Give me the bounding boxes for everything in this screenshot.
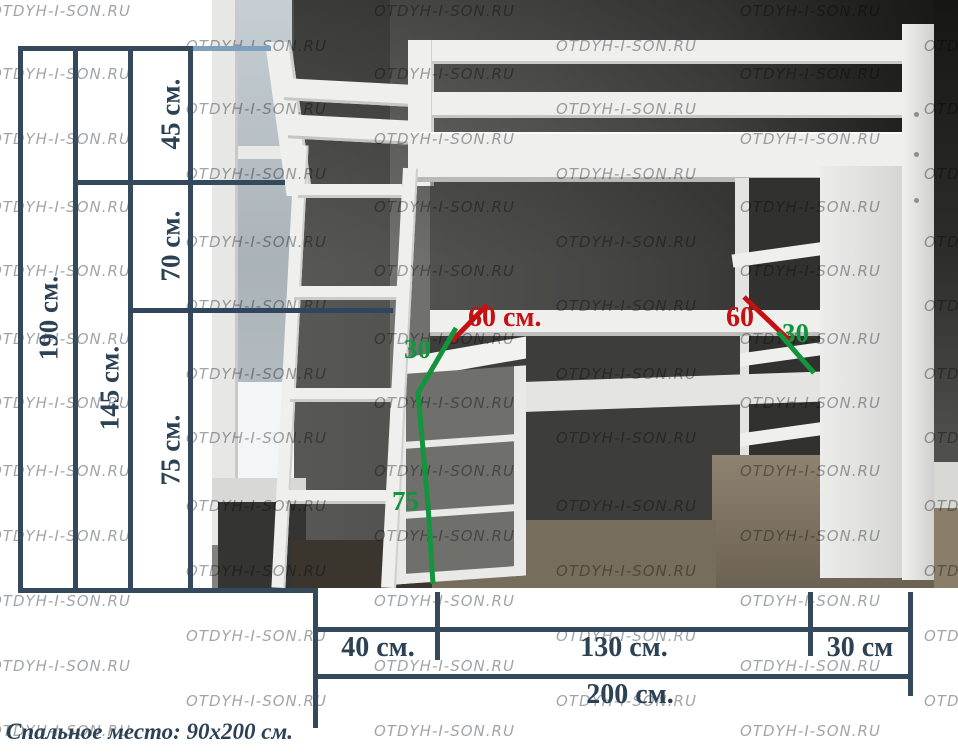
width-label-30: 30 см bbox=[810, 632, 910, 664]
dresser-depth-label: 30 bbox=[404, 334, 431, 365]
sleeping-area-caption: Спальное место: 90x200 см. bbox=[6, 719, 293, 745]
baseboard bbox=[934, 462, 958, 508]
watermark-text: OTDYH-I-SON.RU bbox=[374, 722, 515, 740]
guard-rail-top bbox=[432, 40, 934, 64]
watermark-text: OTDYH-I-SON.RU bbox=[0, 2, 131, 20]
width-label-130: 130 см. bbox=[440, 632, 808, 664]
loft-bed-dimension-diagram: OTDYH-I-SON.RUOTDYH-I-SON.RUOTDYH-I-SON.… bbox=[0, 0, 958, 756]
post-bolt-icon bbox=[914, 198, 919, 203]
watermark-text: OTDYH-I-SON.RU bbox=[0, 657, 131, 675]
height-label-45: 45 см. bbox=[156, 79, 187, 150]
bed-right-post bbox=[902, 24, 934, 580]
post-bolt-icon bbox=[914, 152, 919, 157]
dresser-height-label: 75 bbox=[392, 486, 419, 517]
watermark-text: OTDYH-I-SON.RU bbox=[0, 592, 131, 610]
width-label-total: 200 см. bbox=[350, 679, 910, 711]
height-label-190: 190 см. bbox=[34, 276, 65, 360]
watermark-text: OTDYH-I-SON.RU bbox=[374, 592, 515, 610]
height-label-70: 70 см. bbox=[156, 211, 187, 282]
height-label-145: 145 см. bbox=[95, 346, 126, 430]
dim-line-vertical-190 bbox=[18, 46, 23, 592]
dim-tick-floor bbox=[18, 588, 318, 593]
dim-tick-desk-level bbox=[128, 308, 393, 313]
shelf-depth-60-label: 60 bbox=[726, 302, 754, 334]
watermark-text: OTDYH-I-SON.RU bbox=[186, 627, 327, 645]
window-frame bbox=[212, 0, 238, 545]
watermark-text: OTDYH-I-SON.RU bbox=[186, 692, 327, 710]
desk-depth-label: 60 см. bbox=[468, 302, 542, 334]
watermark-text: OTDYH-I-SON.RU bbox=[924, 627, 958, 645]
ladder-rung bbox=[298, 184, 402, 198]
dim-tick-top bbox=[18, 46, 193, 51]
guard-rail-middle bbox=[432, 92, 934, 118]
post-bolt-icon bbox=[914, 112, 919, 117]
room-photo bbox=[212, 0, 958, 588]
height-label-75: 75 см. bbox=[156, 415, 187, 486]
shelf-side-panel bbox=[820, 166, 902, 578]
shelf-depth-30-label: 30 bbox=[782, 318, 809, 349]
width-label-40: 40 см. bbox=[318, 632, 438, 664]
ladder-rung bbox=[286, 490, 390, 504]
dim-line-vertical-segments bbox=[128, 46, 133, 592]
watermark-text: OTDYH-I-SON.RU bbox=[740, 722, 881, 740]
dim-tick-top-extension bbox=[193, 46, 271, 51]
dresser bbox=[394, 343, 526, 588]
corner-carpet bbox=[934, 508, 958, 588]
dim-line-vertical-145 bbox=[73, 46, 78, 592]
watermark-text: OTDYH-I-SON.RU bbox=[924, 692, 958, 710]
dresser-body bbox=[394, 365, 526, 584]
ladder-rung bbox=[290, 388, 394, 402]
dim-tick-145 bbox=[73, 180, 285, 185]
ladder-rung bbox=[294, 286, 398, 300]
dim-line-vertical-inner bbox=[188, 46, 193, 592]
